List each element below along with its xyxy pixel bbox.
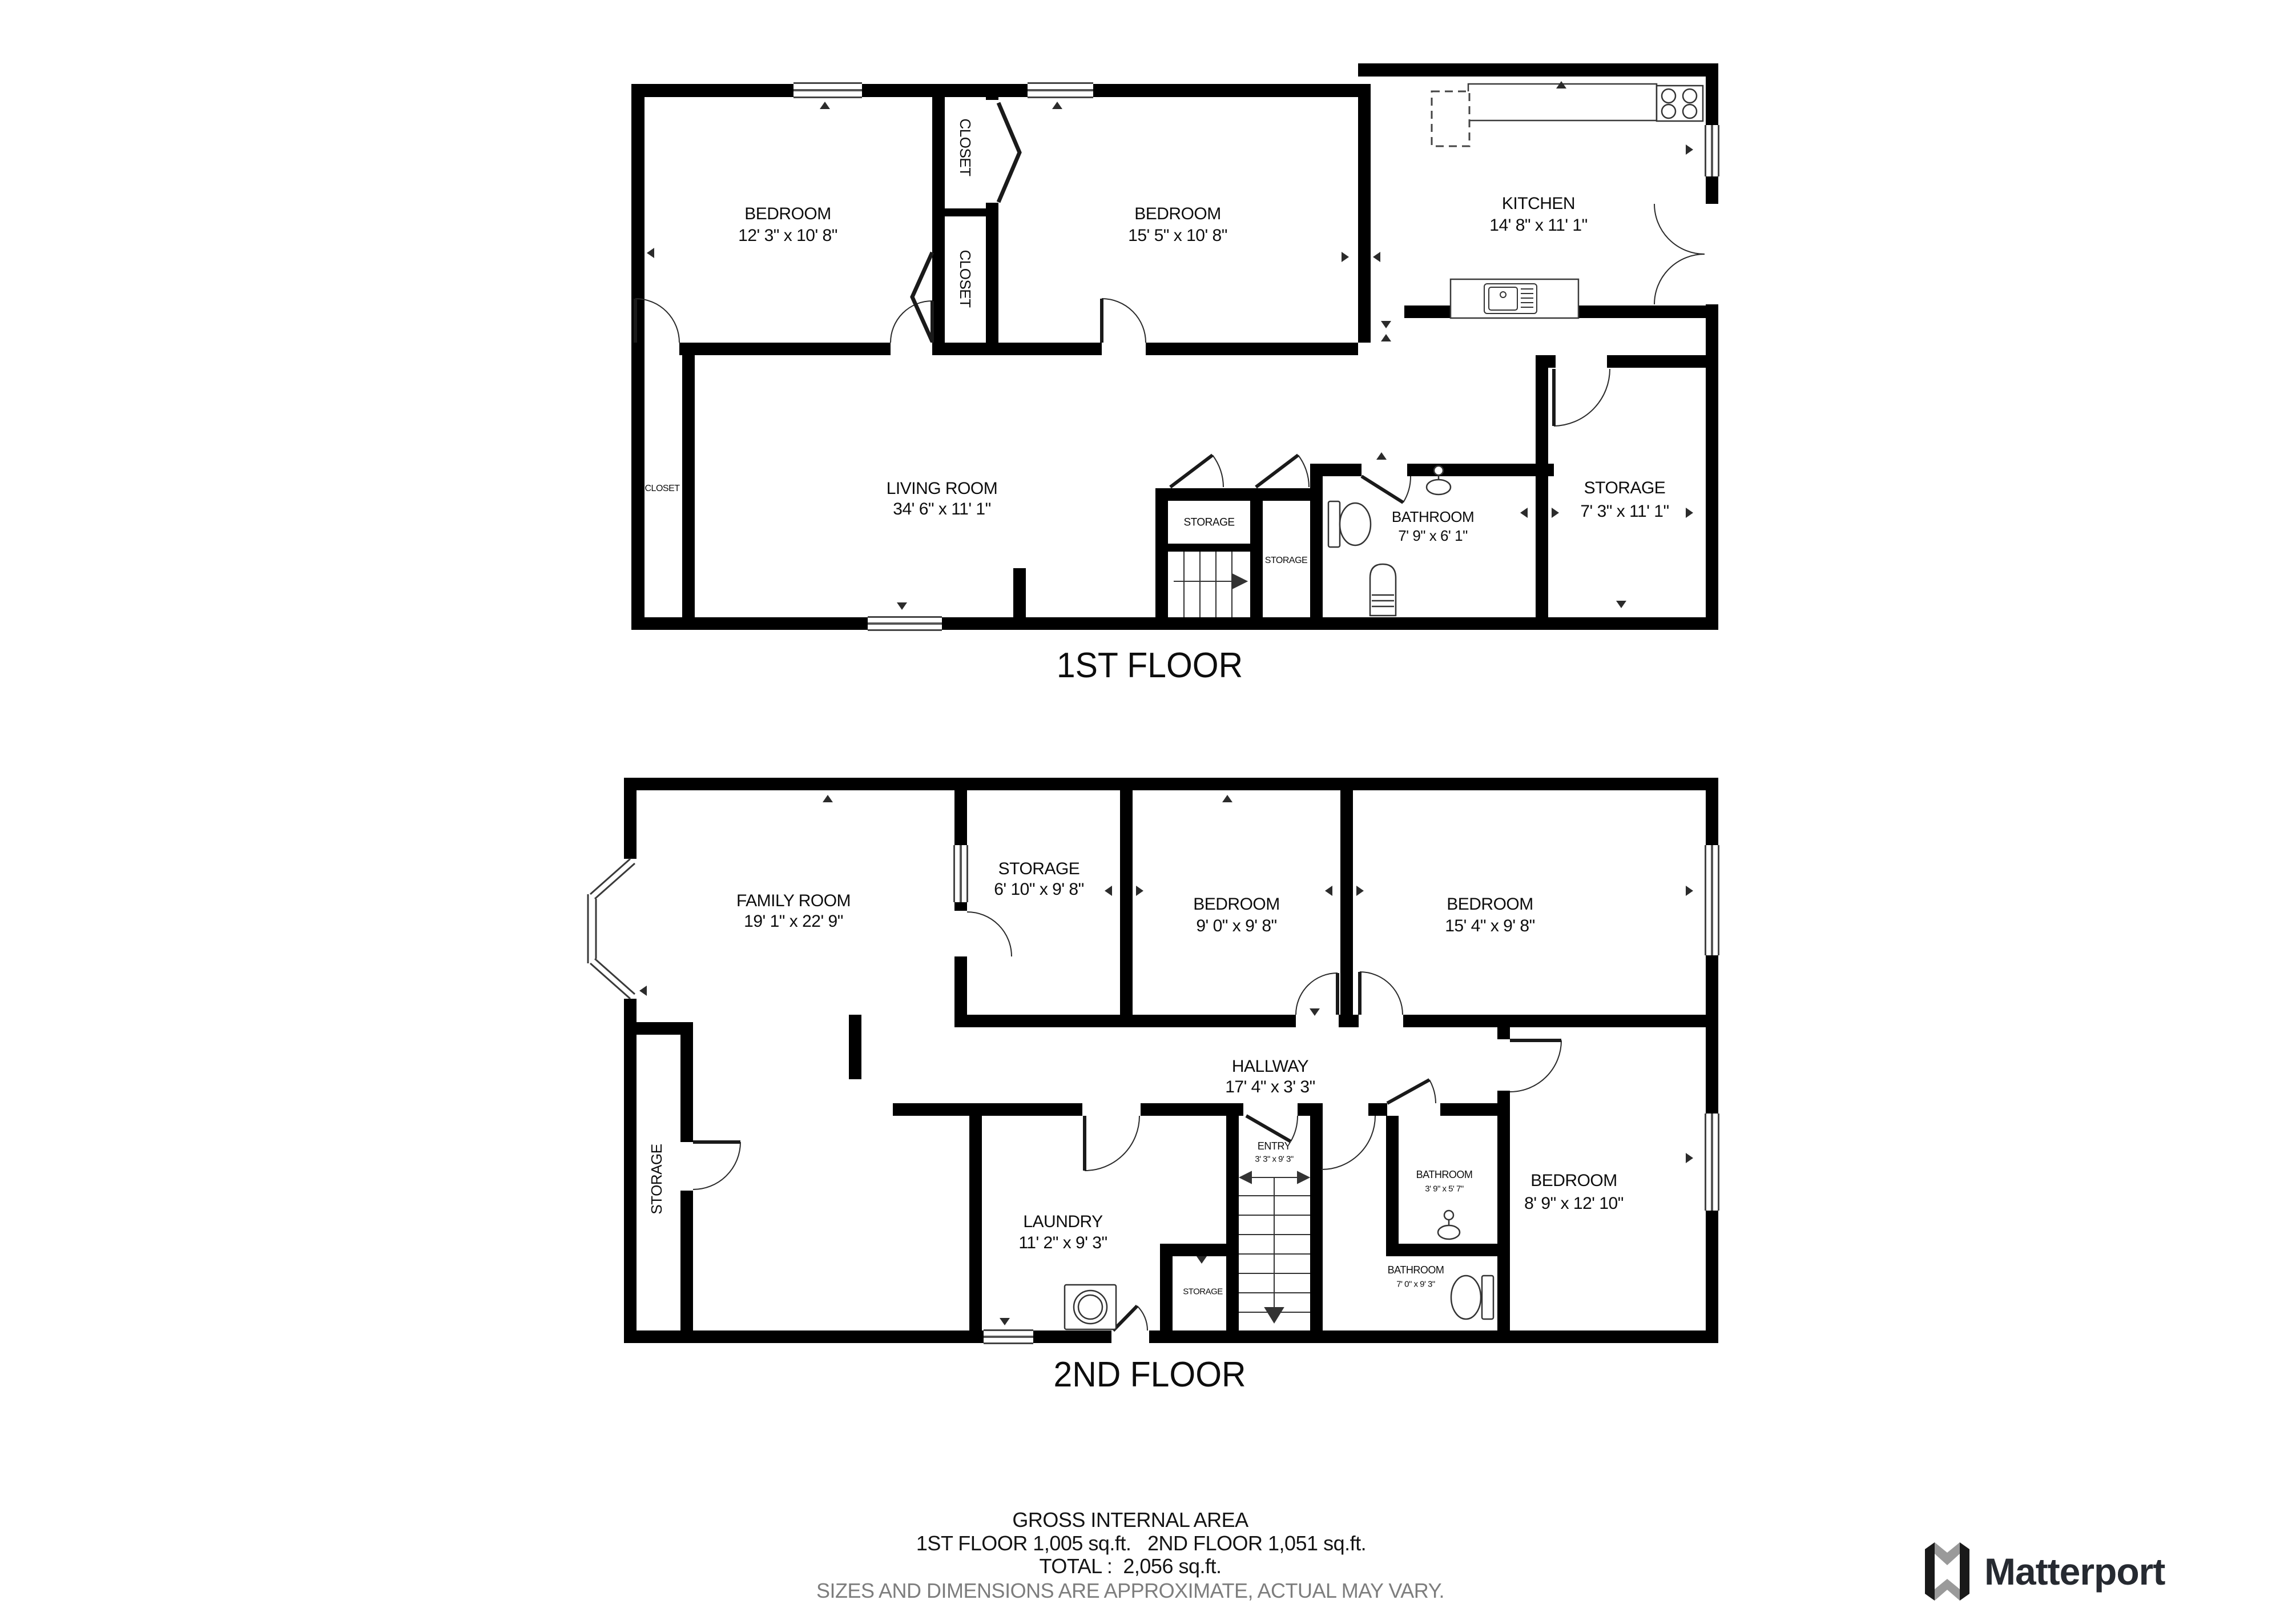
- room-name: LAUNDRY: [1023, 1213, 1102, 1231]
- room-dims: 9' 0" x 9' 8": [1196, 918, 1276, 935]
- arrow-marker-icon: [1552, 508, 1559, 518]
- room-dims: 3' 3" x 9' 3": [1255, 1155, 1293, 1164]
- room-dims: 7' 0" x 9' 3": [1396, 1280, 1435, 1289]
- washer-icon: [1065, 1285, 1116, 1329]
- room-name: BEDROOM: [1193, 896, 1280, 913]
- footer-total-area: TOTAL : 2,056 sq.ft.: [1040, 1554, 1222, 1578]
- arrow-marker-icon: [1105, 886, 1112, 896]
- arrow-marker-icon: [1000, 1318, 1010, 1325]
- closet-label: CLOSET: [958, 250, 973, 307]
- footer-spacer: [1131, 1531, 1147, 1555]
- arrow-marker-icon: [1686, 144, 1693, 155]
- arrow-marker-icon: [897, 602, 907, 610]
- room-name: BEDROOM: [1530, 1172, 1617, 1189]
- arrow-marker-icon: [1325, 886, 1332, 896]
- arrow-marker-icon: [1136, 886, 1143, 896]
- room-dims: 15' 5" x 10' 8": [1128, 227, 1227, 244]
- room-name: HALLWAY: [1232, 1058, 1308, 1075]
- arrow-marker-icon: [1616, 601, 1626, 608]
- closet-label: CLOSET: [958, 118, 973, 176]
- sink-icon-2: [1438, 1211, 1460, 1239]
- room-name: BATHROOM: [1388, 1265, 1444, 1275]
- floor-title: 1ST FLOOR: [1057, 648, 1243, 684]
- room-dims: 17' 4" x 3' 3": [1225, 1079, 1315, 1096]
- room-dims: 3' 9" x 5' 7": [1425, 1185, 1463, 1193]
- footer-floor1-area: 1ST FLOOR 1,005 sq.ft.: [916, 1531, 1131, 1555]
- arrow-marker-icon: [1686, 886, 1693, 896]
- room-name: BATHROOM: [1392, 509, 1474, 524]
- arrow-marker-icon: [1310, 1008, 1320, 1016]
- arrow-marker-icon: [1356, 886, 1364, 896]
- matterport-logo: Matterport: [1925, 1542, 2165, 1601]
- footer-disclaimer: SIZES AND DIMENSIONS ARE APPROXIMATE, AC…: [816, 1579, 1444, 1603]
- arrow-marker-icon: [639, 986, 647, 996]
- room-dims: 7' 3" x 11' 1": [1580, 503, 1669, 520]
- arrow-marker-icon: [1520, 508, 1528, 518]
- room-dims: 12' 3" x 10' 8": [738, 227, 837, 244]
- arrow-marker-icon: [1381, 334, 1391, 341]
- room-dims: 7' 9" x 6' 1": [1398, 528, 1468, 543]
- storage-label: STORAGE: [649, 1144, 664, 1214]
- room-dims: 6' 10" x 9' 8": [994, 881, 1084, 898]
- storage-label: STORAGE: [1183, 1288, 1223, 1296]
- floorplan-page: BEDROOM 12' 3" x 10' 8" BEDROOM 15' 5" x…: [0, 0, 2296, 1624]
- arrow-marker-icon: [1556, 81, 1566, 89]
- arrow-marker-icon: [1686, 508, 1693, 518]
- matterport-logo-text: Matterport: [1984, 1550, 2165, 1593]
- room-name: ENTRY: [1258, 1141, 1291, 1151]
- stove-icon: [1657, 86, 1703, 121]
- room-name: STORAGE: [1584, 480, 1666, 497]
- arrow-marker-icon: [1686, 1153, 1693, 1163]
- arrow-marker-icon: [1381, 321, 1391, 328]
- arrow-marker-icon: [647, 248, 654, 258]
- door-arcs-floor1: [635, 204, 1705, 503]
- room-dims: 8' 9" x 12' 10": [1524, 1195, 1624, 1212]
- room-name: BEDROOM: [1447, 896, 1533, 913]
- arrow-marker-icon: [1197, 1256, 1207, 1264]
- room-dims: 15' 4" x 9' 8": [1445, 918, 1535, 935]
- sink-icon: [1427, 466, 1451, 495]
- storage-label: STORAGE: [1183, 517, 1234, 528]
- stairs-floor1: [1174, 552, 1247, 617]
- room-dims: 14' 8" x 11' 1": [1489, 217, 1587, 234]
- floor-title: 2ND FLOOR: [1053, 1357, 1246, 1393]
- arrow-marker-icon: [820, 102, 830, 109]
- arrow-marker-icon: [1373, 252, 1380, 262]
- arrow-marker-icon: [823, 795, 833, 802]
- arrow-marker-icon: [1222, 795, 1232, 802]
- storage-label: STORAGE: [1265, 556, 1307, 565]
- room-dims: 11' 2" x 9' 3": [1018, 1235, 1107, 1252]
- door-leaves-floor1: [635, 299, 1554, 503]
- room-name: FAMILY ROOM: [736, 893, 851, 910]
- room-name: KITCHEN: [1502, 195, 1575, 212]
- room-name: BEDROOM: [744, 206, 831, 223]
- toilet-icon: [1328, 501, 1371, 547]
- arrow-marker-icon: [1342, 252, 1349, 262]
- room-name: BEDROOM: [1134, 206, 1221, 223]
- room-name: BATHROOM: [1416, 1169, 1473, 1180]
- footer-floor2-area: 2ND FLOOR 1,051 sq.ft.: [1147, 1531, 1366, 1555]
- toilet-icon-2: [1451, 1276, 1493, 1319]
- room-name: STORAGE: [998, 861, 1080, 878]
- stairs-floor2: [1239, 1172, 1310, 1322]
- kitchen-sink-icon: [1484, 284, 1537, 313]
- fridge-icon: [1432, 91, 1469, 146]
- bay-window: [588, 859, 635, 999]
- room-name: LIVING ROOM: [887, 480, 998, 497]
- shower-icon: [1370, 564, 1396, 616]
- arrow-marker-icon: [1052, 102, 1062, 109]
- closet-label: CLOSET: [645, 484, 679, 493]
- matterport-logo-icon: [1925, 1542, 1969, 1601]
- room-dims: 19' 1" x 22' 9": [744, 913, 843, 930]
- arrow-marker-icon: [1376, 452, 1387, 460]
- room-dims: 34' 6" x 11' 1": [893, 501, 990, 518]
